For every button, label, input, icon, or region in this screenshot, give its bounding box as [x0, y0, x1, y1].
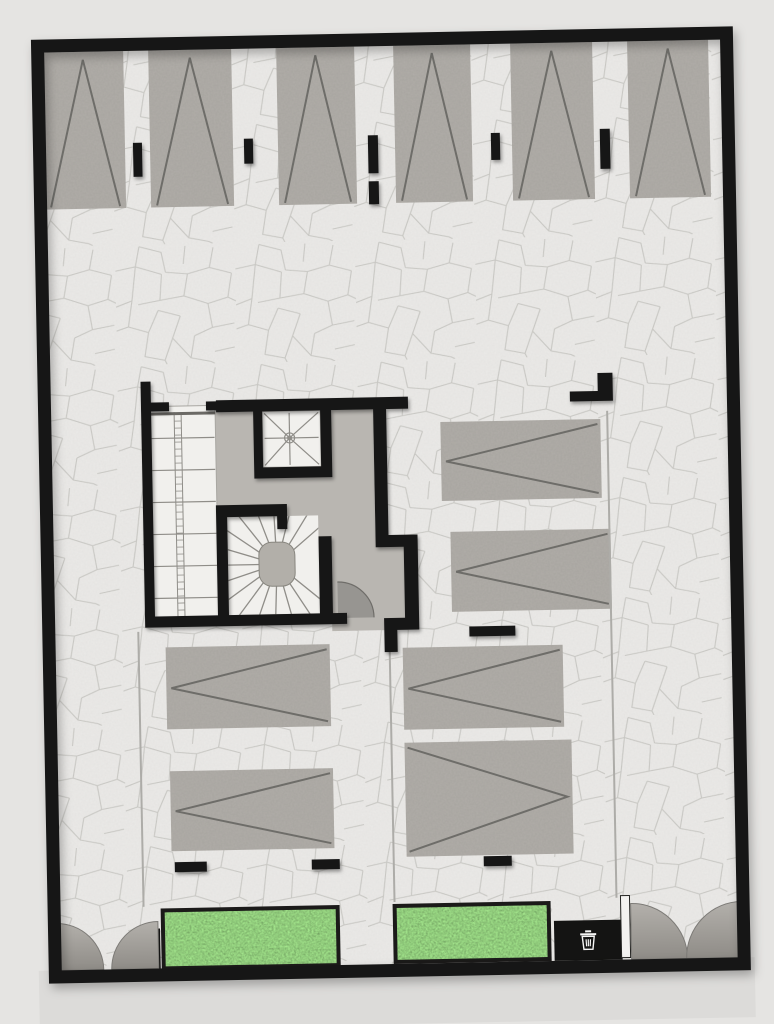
- wall-stub: [368, 135, 379, 173]
- planter: [161, 905, 341, 970]
- parking-stall: [404, 740, 573, 857]
- wall-stub: [491, 133, 501, 160]
- spiral-newel: [259, 542, 296, 587]
- parking-stall: [170, 768, 335, 851]
- parking-stall: [450, 529, 612, 612]
- floor-bar: [469, 626, 515, 637]
- floor-bar: [312, 859, 340, 870]
- core-wall: [318, 536, 333, 624]
- core-wall: [320, 398, 333, 477]
- grass: [397, 905, 548, 960]
- winder-tread-line: [290, 437, 319, 438]
- core-wall: [216, 505, 229, 626]
- plan-root: [21, 33, 756, 1024]
- core-wall: [151, 402, 169, 411]
- core-wall: [373, 409, 389, 547]
- floor-plan-stage: [0, 0, 774, 1024]
- parking-stall: [393, 44, 473, 202]
- core-wall: [206, 401, 222, 410]
- core-wall: [277, 516, 287, 529]
- stall-texture: [276, 47, 357, 205]
- floor-plan-rendering: [0, 0, 774, 1024]
- parking-stall: [440, 419, 601, 501]
- winder-stair: [262, 410, 321, 467]
- core-wall: [403, 534, 419, 629]
- parking-stall: [166, 644, 332, 729]
- parking-stall: [403, 645, 565, 730]
- core-wall: [254, 466, 332, 478]
- wall-stub: [369, 181, 379, 204]
- wall-stub: [133, 143, 143, 177]
- gate-slot: [620, 895, 630, 957]
- winder-tread-line: [290, 438, 291, 465]
- parking-stall: [276, 47, 357, 205]
- straight-stair: [150, 405, 219, 622]
- floor-bar: [484, 856, 512, 867]
- core-wall: [384, 618, 398, 652]
- stall-texture: [393, 44, 473, 202]
- grass: [165, 909, 337, 966]
- parking-stall: [627, 40, 711, 199]
- wall-stub: [244, 139, 253, 164]
- planter: [393, 901, 552, 964]
- parking-stall: [42, 51, 126, 210]
- wall-stub: [600, 129, 611, 169]
- parking-stall: [510, 42, 595, 201]
- stall-texture: [404, 740, 573, 857]
- parking-stall: [148, 49, 234, 208]
- floor-bar: [175, 862, 207, 873]
- corner-wall-marker: [570, 391, 613, 402]
